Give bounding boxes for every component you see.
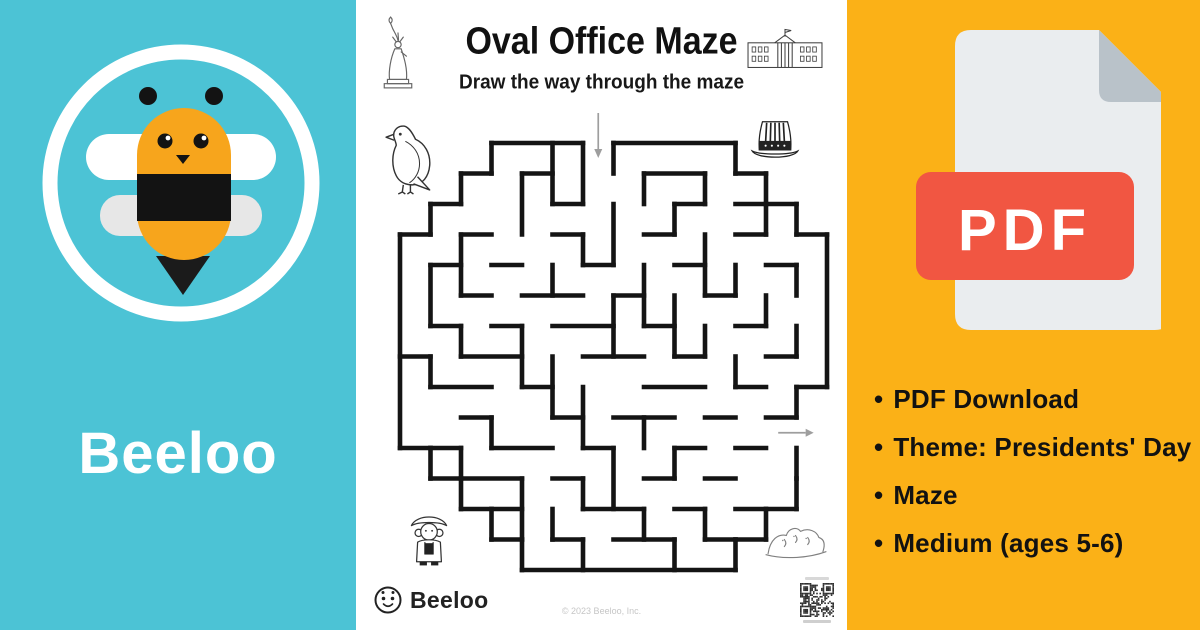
worksheet-title: Oval Office Maze bbox=[356, 20, 847, 64]
detail-list: • PDF Download • Theme: Presidents' Day … bbox=[874, 384, 1191, 576]
bullet-dot: • bbox=[874, 432, 883, 463]
qr-code bbox=[800, 583, 834, 617]
maze bbox=[380, 108, 850, 608]
qr-caption-bottom bbox=[803, 620, 831, 623]
worksheet-subtitle: Draw the way through the maze bbox=[356, 71, 847, 95]
detail-item-format: • PDF Download bbox=[874, 384, 1191, 415]
qr-caption-top bbox=[805, 577, 829, 580]
worksheet-preview: Oval Office Maze Draw the way through th… bbox=[356, 0, 847, 630]
detail-item-label: Theme: Presidents' Day bbox=[893, 432, 1191, 463]
detail-item-difficulty: • Medium (ages 5-6) bbox=[874, 528, 1191, 559]
detail-item-theme: • Theme: Presidents' Day bbox=[874, 432, 1191, 463]
pdf-file-icon: PDF bbox=[885, 22, 1161, 338]
detail-item-label: PDF Download bbox=[893, 384, 1079, 415]
detail-item-type: • Maze bbox=[874, 480, 1191, 511]
brand-wordmark: Beeloo bbox=[0, 420, 356, 487]
bullet-dot: • bbox=[874, 384, 883, 415]
brand-panel: Beeloo bbox=[0, 0, 356, 630]
bee-icon bbox=[86, 87, 276, 295]
detail-item-label: Maze bbox=[893, 480, 957, 511]
copyright-text: © 2023 Beeloo, Inc. bbox=[356, 606, 847, 616]
social-card: Beeloo bbox=[0, 0, 1200, 630]
details-panel: PDF • PDF Download • Theme: Presidents' … bbox=[847, 0, 1200, 630]
pdf-label: PDF bbox=[958, 198, 1092, 263]
bullet-dot: • bbox=[874, 528, 883, 559]
beeloo-logo-badge bbox=[0, 18, 356, 348]
bullet-dot: • bbox=[874, 480, 883, 511]
detail-item-label: Medium (ages 5-6) bbox=[893, 528, 1123, 559]
